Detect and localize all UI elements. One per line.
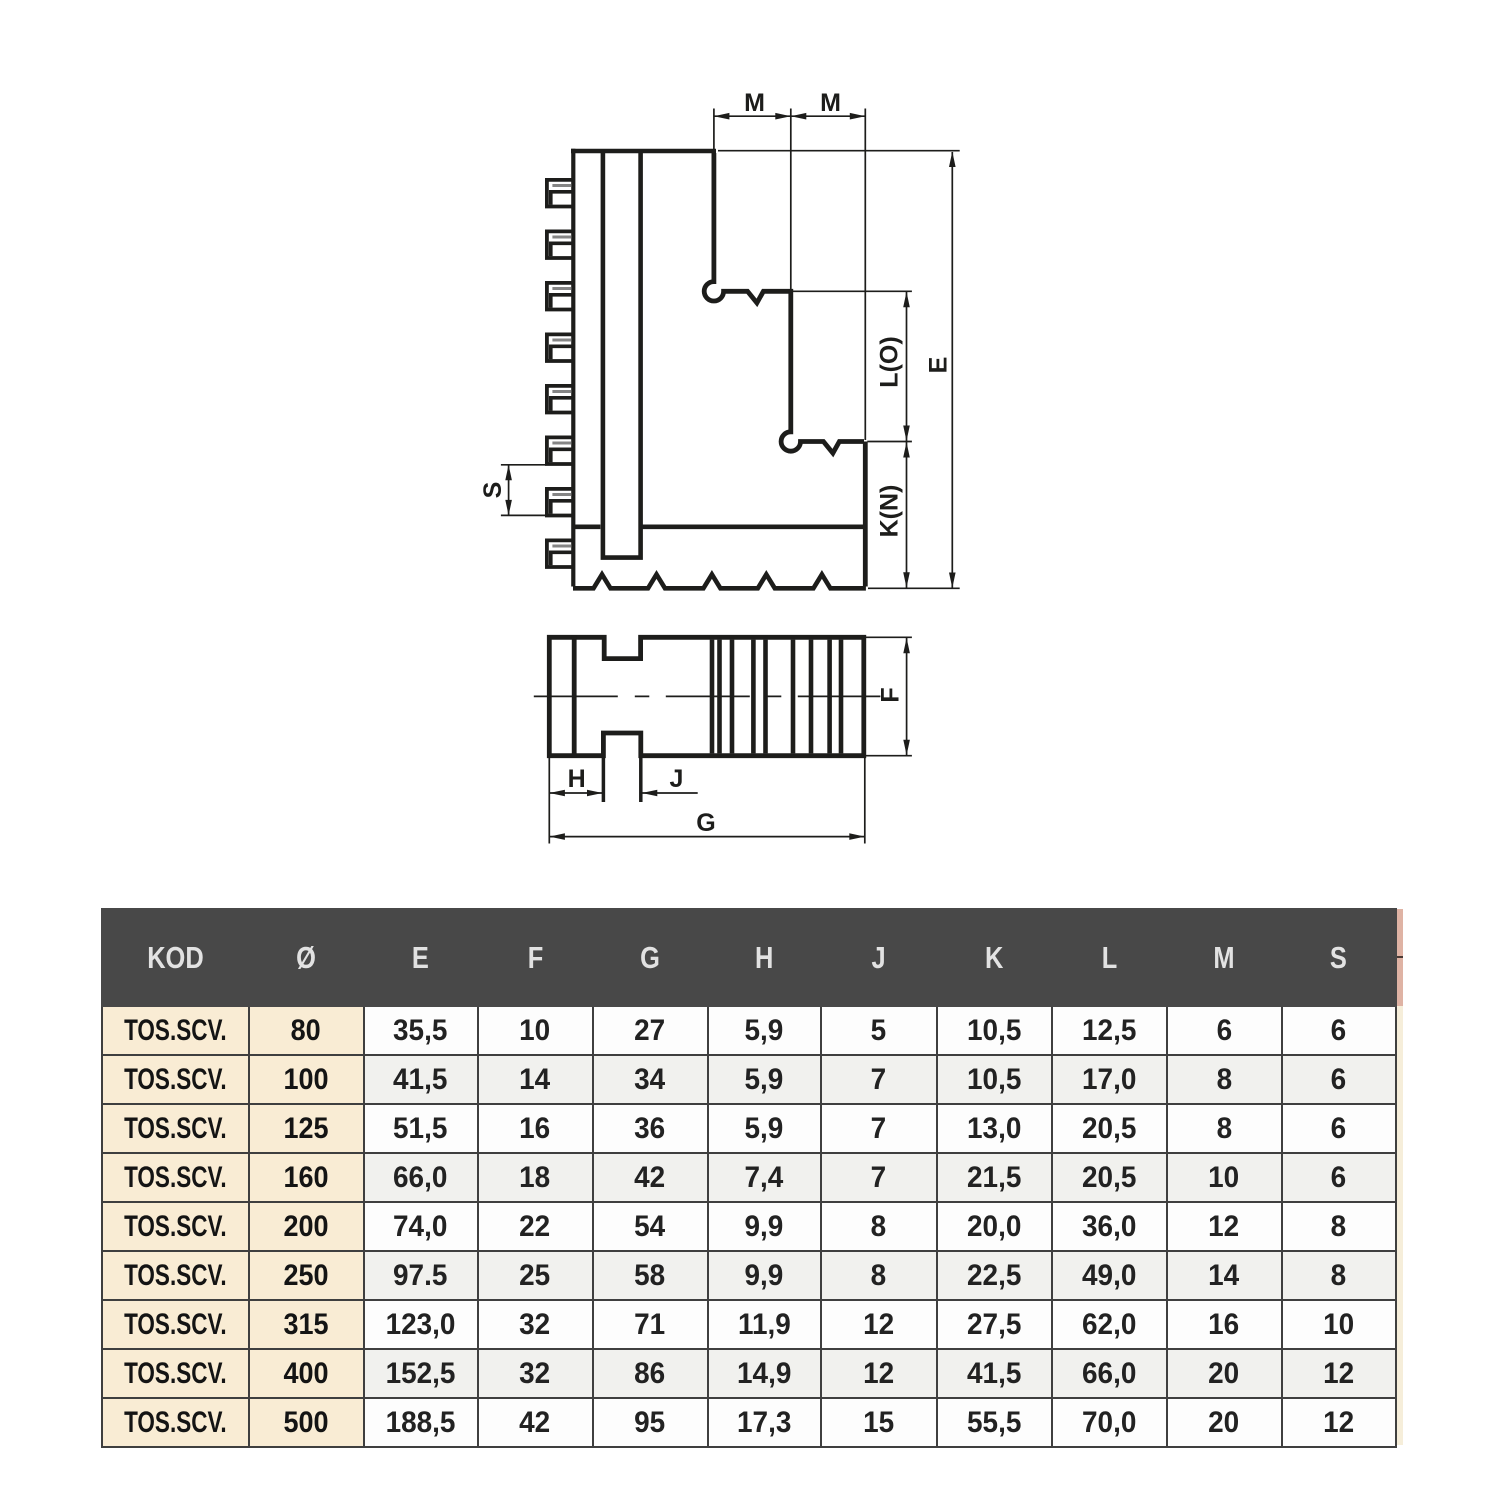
svg-text:S: S [479, 482, 507, 499]
svg-text:J: J [670, 765, 684, 793]
svg-text:K(N): K(N) [876, 485, 904, 538]
svg-text:G: G [696, 809, 715, 837]
svg-text:E: E [925, 357, 953, 374]
svg-text:M: M [744, 89, 765, 117]
svg-text:L(O): L(O) [876, 336, 904, 387]
svg-text:H: H [568, 765, 586, 793]
svg-text:M: M [820, 89, 841, 117]
svg-text:F: F [877, 687, 905, 702]
